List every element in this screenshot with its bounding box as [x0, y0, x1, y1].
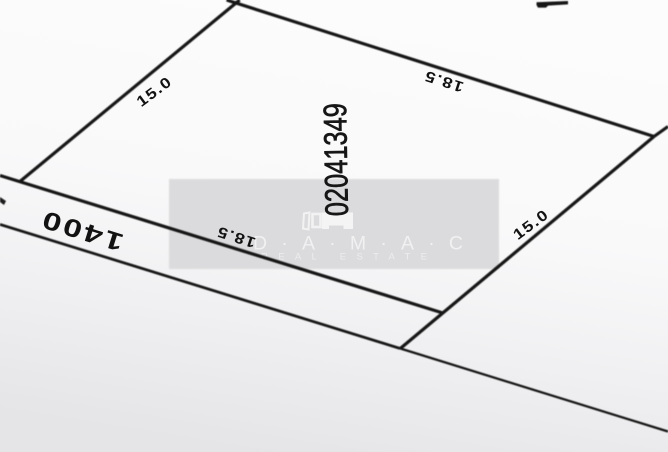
svg-text:02041349: 02041349 — [317, 103, 355, 217]
